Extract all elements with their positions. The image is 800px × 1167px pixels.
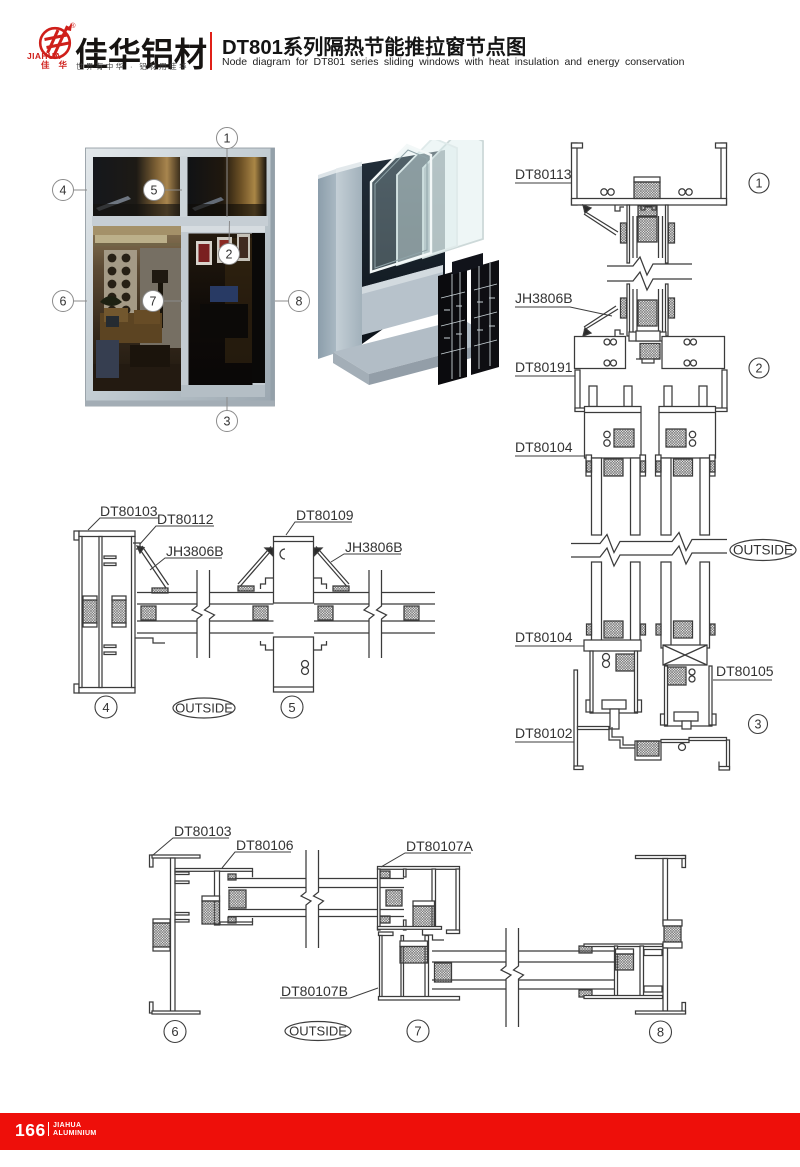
- svg-text:5: 5: [151, 184, 158, 198]
- svg-text:DT80113: DT80113: [515, 166, 572, 182]
- svg-text:7: 7: [414, 1024, 421, 1039]
- svg-text:3: 3: [755, 718, 762, 732]
- svg-text:6: 6: [60, 295, 67, 309]
- svg-text:3: 3: [224, 415, 231, 429]
- svg-text:DT80107B: DT80107B: [281, 983, 348, 999]
- svg-text:DT80105: DT80105: [716, 663, 774, 679]
- svg-text:1: 1: [756, 177, 763, 191]
- svg-text:DT80109: DT80109: [296, 507, 354, 523]
- svg-text:4: 4: [60, 184, 67, 198]
- svg-text:DT80102: DT80102: [515, 725, 573, 741]
- svg-text:DT80106: DT80106: [236, 837, 294, 853]
- svg-text:2: 2: [756, 362, 763, 376]
- svg-text:佳华: 佳华: [41, 60, 76, 70]
- svg-text:JH3806B: JH3806B: [515, 290, 573, 306]
- svg-text:JH3806B: JH3806B: [345, 539, 403, 555]
- svg-text:DT80191: DT80191: [515, 359, 573, 375]
- svg-text:DT80104: DT80104: [515, 629, 573, 645]
- svg-text:OUTSIDE: OUTSIDE: [175, 701, 233, 716]
- svg-text:2: 2: [226, 248, 233, 262]
- svg-text:DT80112: DT80112: [157, 511, 214, 527]
- svg-text:7: 7: [150, 295, 157, 309]
- svg-text:OUTSIDE: OUTSIDE: [289, 1024, 347, 1039]
- svg-text:6: 6: [171, 1024, 178, 1039]
- svg-text:DT80103: DT80103: [100, 503, 158, 519]
- svg-text:DT80103: DT80103: [174, 823, 232, 839]
- svg-text:8: 8: [657, 1025, 664, 1040]
- svg-text:OUTSIDE: OUTSIDE: [733, 543, 793, 558]
- svg-text:5: 5: [288, 700, 295, 715]
- svg-text:JH3806B: JH3806B: [166, 543, 224, 559]
- svg-text:DT80104: DT80104: [515, 439, 573, 455]
- svg-text:8: 8: [296, 295, 303, 309]
- svg-text:4: 4: [102, 700, 109, 715]
- svg-text:1: 1: [224, 132, 231, 146]
- svg-text:DT80107A: DT80107A: [406, 838, 474, 854]
